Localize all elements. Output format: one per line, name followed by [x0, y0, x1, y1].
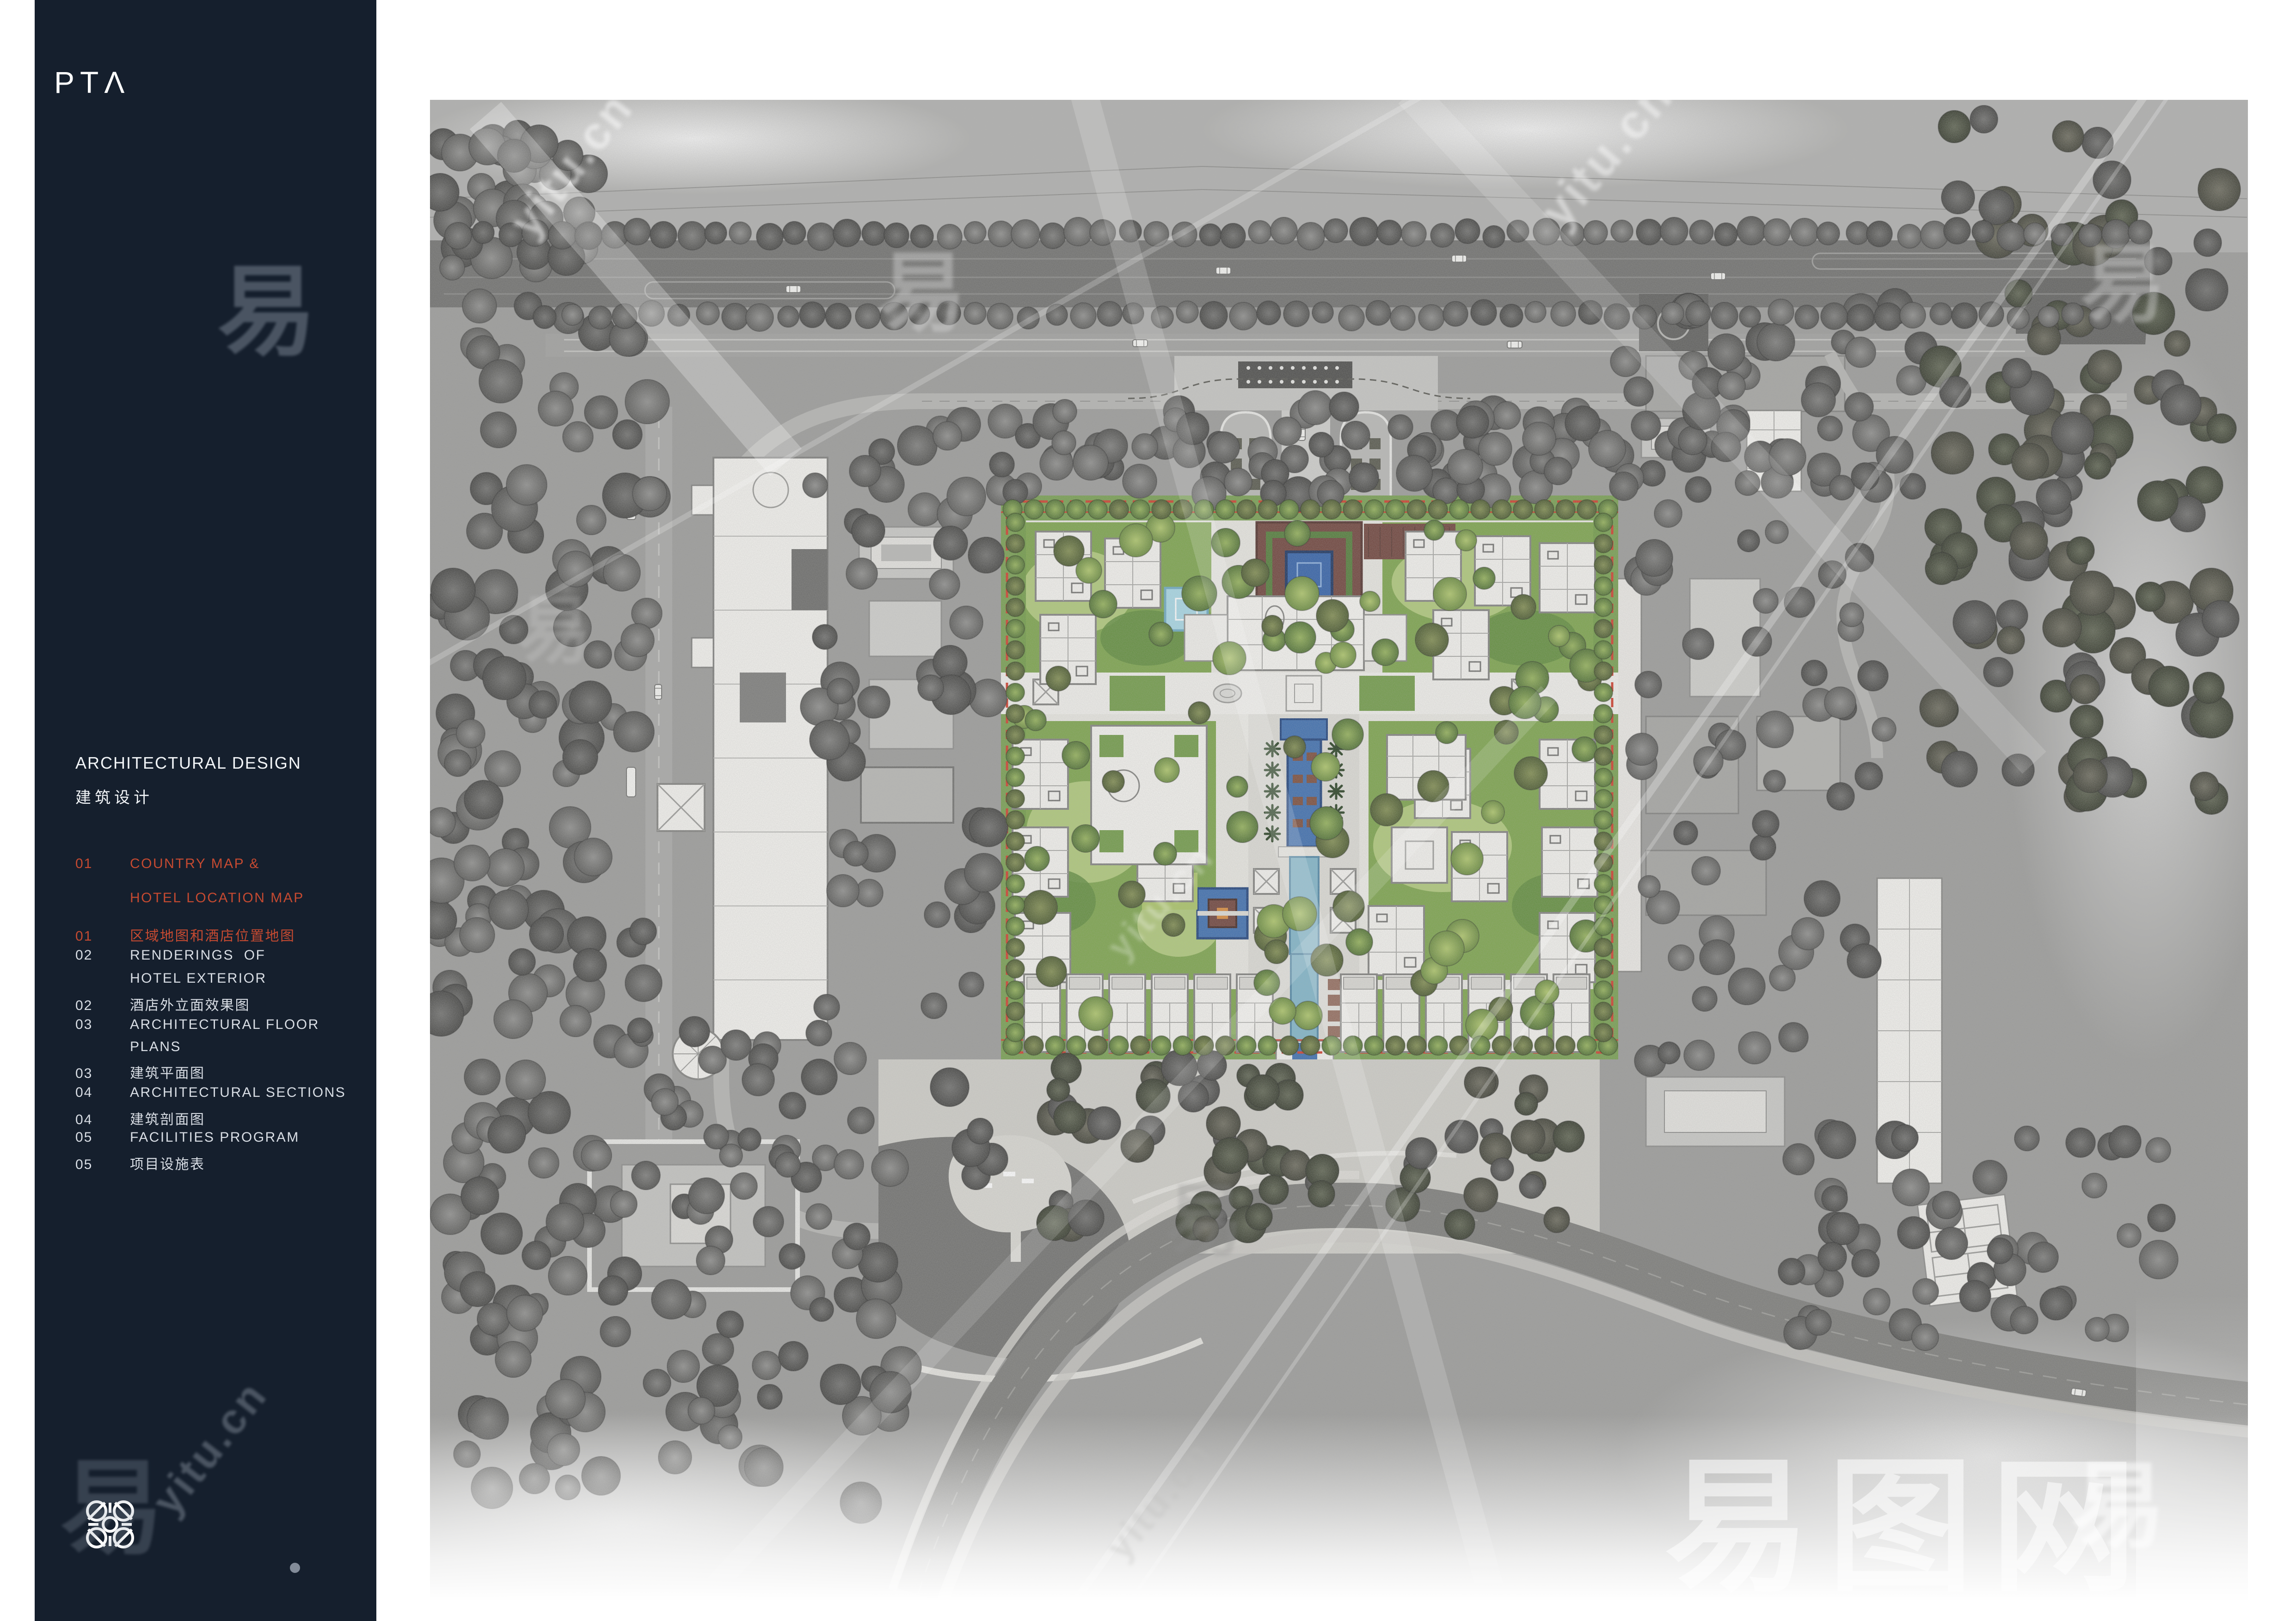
svg-text:易: 易 [878, 245, 969, 343]
svg-text:易: 易 [1165, 1177, 1246, 1265]
site-plan-image: yitu.cnyitu.cnyitu.cnyitu.cn易易易易易 [0, 0, 2296, 1621]
svg-text:易: 易 [518, 589, 595, 672]
svg-text:易: 易 [2071, 1454, 2169, 1560]
svg-text:易: 易 [2081, 238, 2169, 333]
page: PTΛ ARCHITECTURAL DESIGN 建筑设计 01COUNTRY … [0, 0, 2296, 1621]
